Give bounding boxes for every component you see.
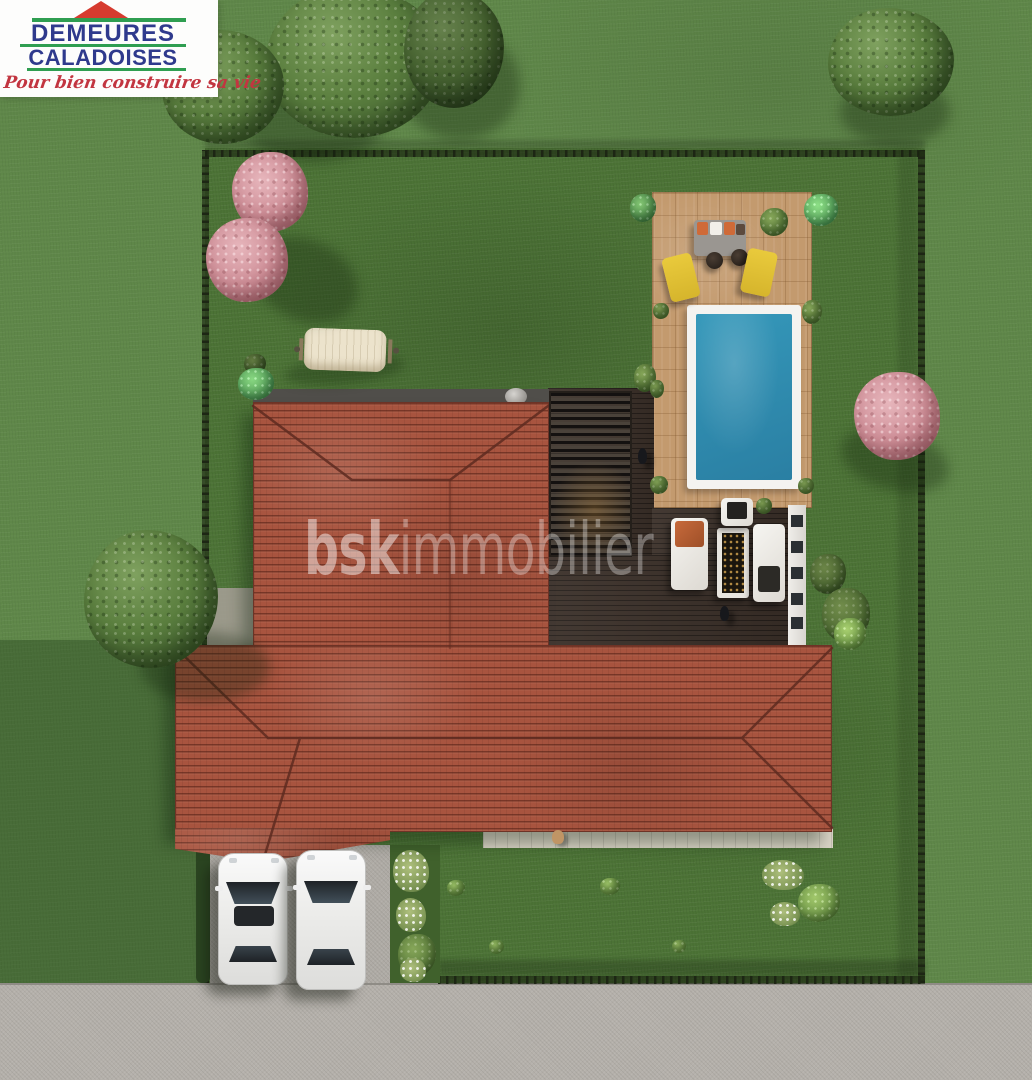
flower-bush xyxy=(393,850,429,892)
fence-bottom-shadow xyxy=(438,960,925,976)
window xyxy=(791,567,803,579)
window xyxy=(791,515,803,527)
window xyxy=(791,541,803,553)
roof-upper-wing xyxy=(253,402,549,658)
road xyxy=(0,983,1032,1080)
roof-main-wing xyxy=(175,645,832,832)
sofa-cushion xyxy=(697,222,708,235)
flower-bush xyxy=(400,958,426,982)
deck-sofa-cushion xyxy=(758,566,780,592)
fire-pouf xyxy=(706,252,723,269)
blossom-tree xyxy=(854,372,940,460)
person xyxy=(638,448,647,464)
tree xyxy=(828,8,954,116)
lounger-towel xyxy=(675,521,704,547)
fence-right-shadow xyxy=(898,150,918,980)
roof-triangle-icon xyxy=(74,1,128,18)
dog xyxy=(552,830,564,844)
fence-bottom xyxy=(438,976,925,984)
house-east-wall xyxy=(788,505,806,645)
sofa-cushion xyxy=(710,222,722,235)
flower-bush xyxy=(770,902,800,926)
blossom-tree xyxy=(206,218,288,302)
aerial-property-render: bskimmobilier DEMEURES CALADOISES Pour b… xyxy=(0,0,1032,1080)
car xyxy=(218,853,288,985)
logo-tagline: Pour bien construire sa vie xyxy=(3,73,263,93)
window xyxy=(791,593,803,605)
car xyxy=(296,850,366,990)
logo-bar xyxy=(27,68,186,71)
window xyxy=(791,617,803,629)
builder-logo: DEMEURES CALADOISES Pour bien construire… xyxy=(0,0,218,97)
side-table-top xyxy=(727,502,747,519)
flower-bush xyxy=(396,898,426,932)
fence-right xyxy=(918,150,925,983)
person xyxy=(720,606,729,621)
sofa-cushion xyxy=(724,222,735,235)
pool-water xyxy=(696,314,792,480)
flower-bush xyxy=(762,860,804,890)
fire-table xyxy=(717,528,749,598)
hammock xyxy=(295,322,401,382)
sofa-cushion xyxy=(736,224,745,235)
pergola xyxy=(549,391,632,557)
tree xyxy=(84,530,218,668)
